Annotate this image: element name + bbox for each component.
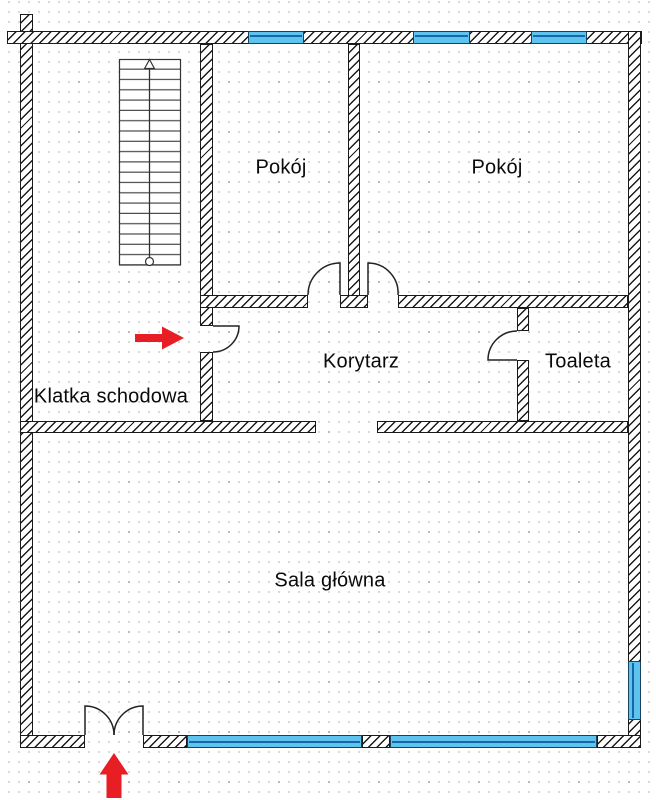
door-arc-pokoj-1 — [308, 263, 340, 295]
room-label-pokoj-1: Pokój — [255, 157, 306, 180]
room-label-klatka-schodowa: Klatka schodowa — [34, 386, 188, 409]
door-arc-entrance-right-leaf — [114, 706, 143, 735]
door-arc-pokoj-2 — [368, 263, 398, 295]
floor-plan-canvas: Pokój Pokój Korytarz Toaleta Klatka scho… — [0, 0, 656, 800]
staircase-icon — [120, 60, 181, 266]
room-label-korytarz: Korytarz — [323, 351, 399, 374]
side-entrance-arrow-icon — [135, 327, 184, 350]
stairs-start-pivot-icon — [146, 258, 154, 266]
room-label-toaleta: Toaleta — [545, 351, 611, 374]
room-label-pokoj-2: Pokój — [471, 157, 522, 180]
room-label-sala-glowna: Sala główna — [274, 570, 385, 593]
door-arc-toaleta — [488, 331, 517, 360]
door-arc-entrance-left-leaf — [85, 706, 114, 735]
door-arc-staircase — [213, 326, 239, 352]
doors-group — [85, 263, 517, 735]
main-entrance-arrow-icon — [100, 753, 129, 798]
